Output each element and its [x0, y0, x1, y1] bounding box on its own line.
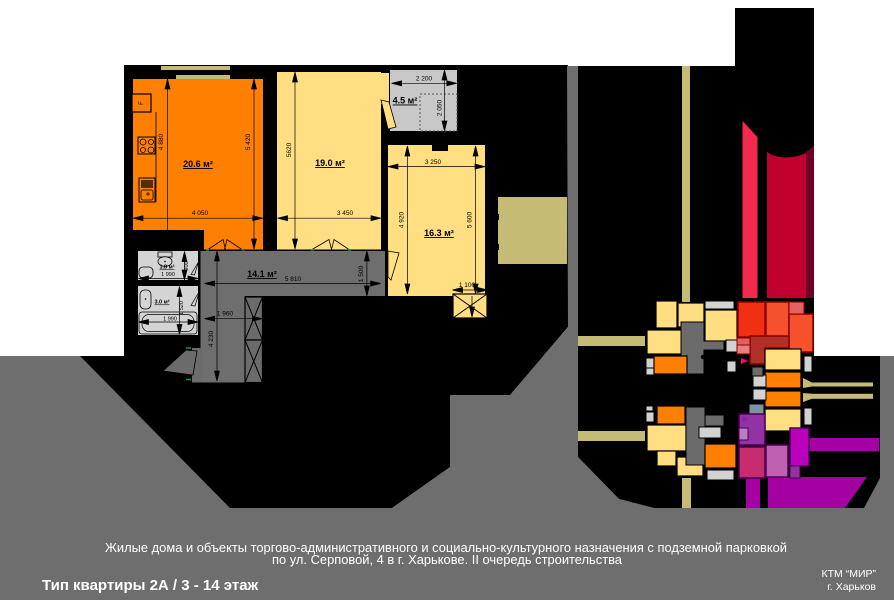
svg-text:1 500: 1 500: [358, 265, 365, 282]
svg-text:4 920: 4 920: [399, 211, 406, 228]
svg-text:1 990: 1 990: [163, 317, 177, 323]
svg-text:14.1 м²: 14.1 м²: [247, 269, 277, 279]
svg-text:3 450: 3 450: [337, 210, 354, 217]
svg-text:2 200: 2 200: [416, 76, 433, 83]
svg-text:3.0 м²: 3.0 м²: [154, 299, 169, 306]
svg-text:КТМ “МИР”: КТМ “МИР”: [822, 568, 877, 580]
svg-text:г. Харьков: г. Харьков: [827, 581, 876, 593]
svg-text:4.5 м²: 4.5 м²: [393, 96, 418, 106]
svg-text:1.8 м²: 1.8 м²: [159, 264, 174, 271]
svg-text:5 420: 5 420: [245, 133, 252, 150]
svg-text:4 230: 4 230: [208, 330, 215, 347]
svg-text:по ул. Серповой, 4 в г. Харько: по ул. Серповой, 4 в г. Харькове. II оче…: [272, 552, 623, 567]
svg-text:900: 900: [184, 261, 190, 270]
svg-text:5 810: 5 810: [285, 276, 302, 283]
svg-text:5 600: 5 600: [467, 211, 474, 228]
svg-text:20.6 м²: 20.6 м²: [183, 159, 213, 169]
svg-text:16.3 м²: 16.3 м²: [424, 228, 454, 238]
svg-text:1 990: 1 990: [161, 272, 175, 278]
svg-text:3 250: 3 250: [425, 159, 442, 166]
svg-text:Тип квартиры 2А / 3 - 14 этаж: Тип квартиры 2А / 3 - 14 этаж: [42, 577, 259, 594]
svg-text:4 880: 4 880: [158, 133, 165, 150]
svg-text:F: F: [139, 101, 145, 105]
svg-text:2 050: 2 050: [437, 99, 444, 116]
svg-text:1 520: 1 520: [179, 301, 185, 315]
svg-text:1 100: 1 100: [459, 282, 476, 289]
svg-text:5620: 5620: [286, 142, 293, 157]
svg-text:19.0 м²: 19.0 м²: [315, 158, 345, 168]
svg-text:4 050: 4 050: [192, 210, 209, 217]
svg-text:1 960: 1 960: [217, 311, 234, 318]
